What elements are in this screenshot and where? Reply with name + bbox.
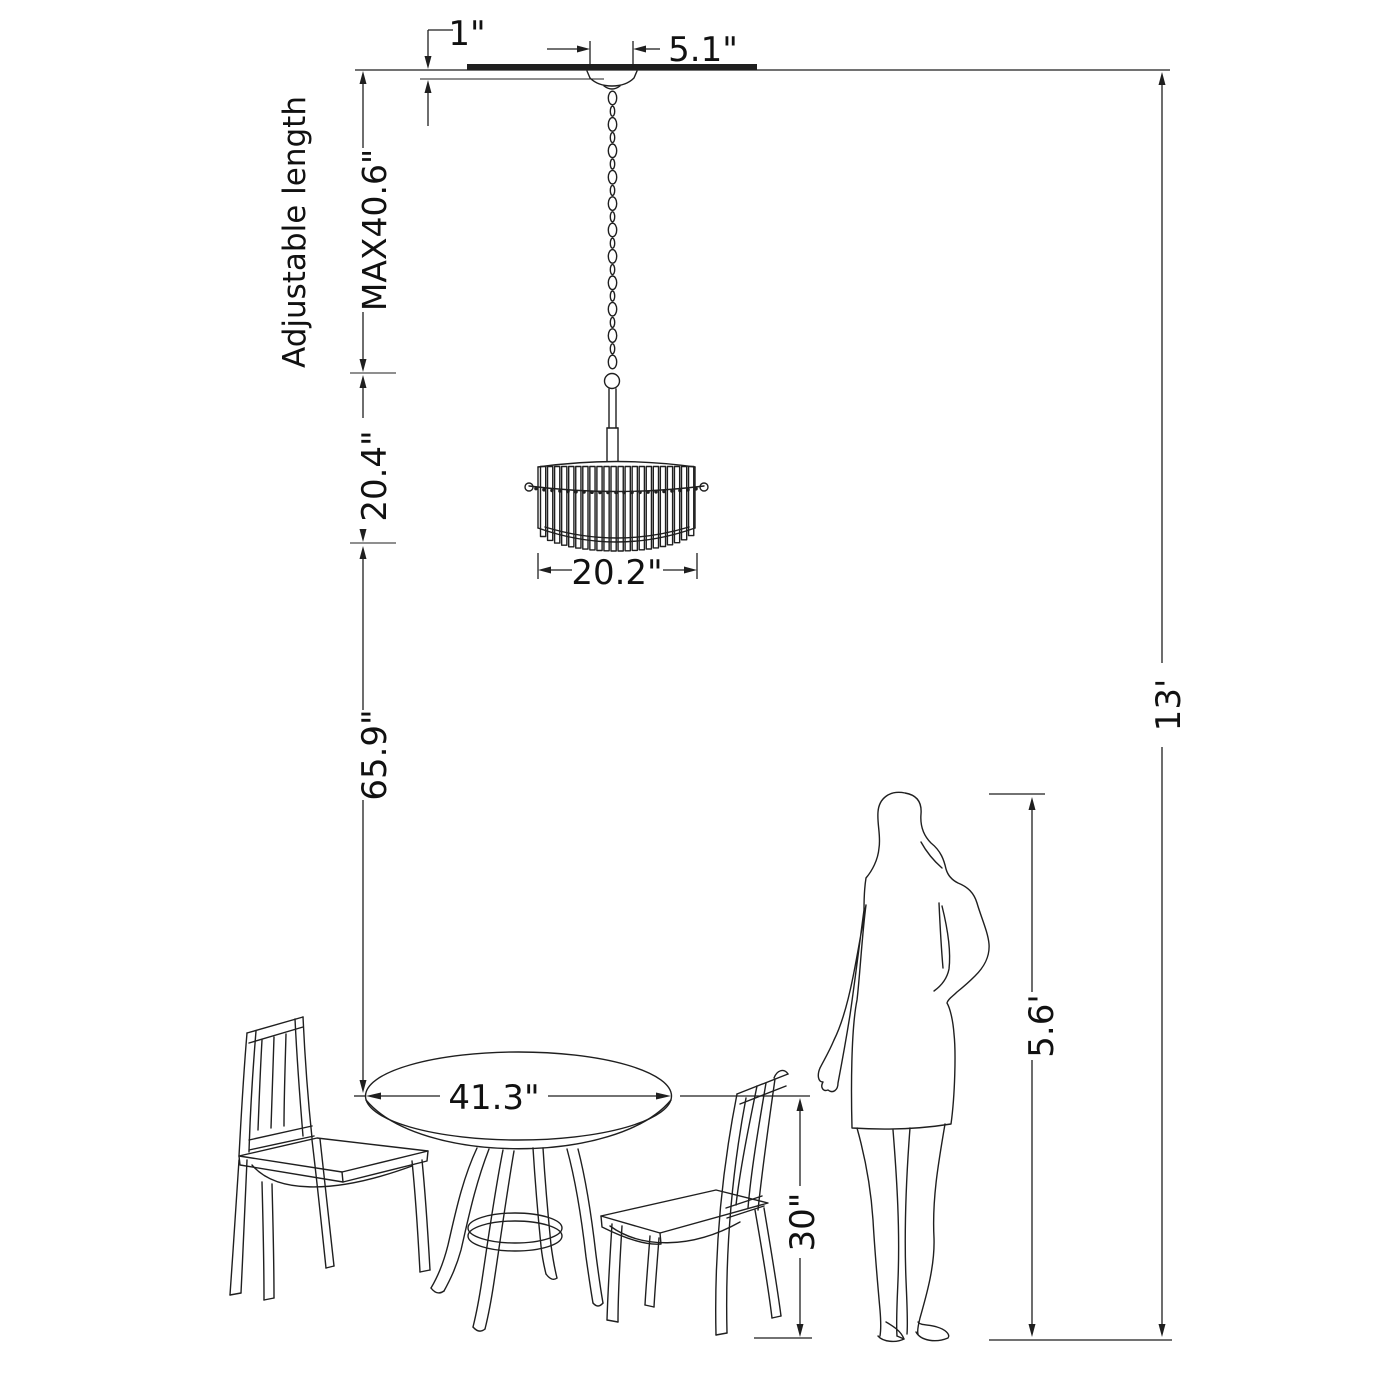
- chandelier: [525, 91, 708, 551]
- label-person-height: 5.6': [1022, 994, 1062, 1057]
- table-pedestal: [431, 1148, 603, 1331]
- woman-silhouette: [818, 792, 989, 1341]
- dimension-lines: [350, 30, 1172, 1340]
- dim-canopy-diameter: [547, 41, 660, 68]
- dim-person-height: [989, 794, 1045, 1337]
- label-table-height: 30": [783, 1193, 823, 1252]
- chair-left: [230, 1017, 430, 1300]
- stem-rod: [607, 389, 618, 461]
- label-table-diameter: 41.3": [448, 1078, 539, 1118]
- drum-shade: [525, 462, 708, 552]
- label-clearance: 65.9": [355, 709, 395, 800]
- label-canopy-diameter: 5.1": [668, 30, 738, 70]
- label-adjustable-length: Adjustable length: [277, 96, 313, 368]
- dimension-diagram: 1" 5.1" Adjustable length MAX40.6" 20.4"…: [0, 0, 1400, 1400]
- label-max-length: MAX40.6": [355, 149, 394, 311]
- dim-table-diameter: [354, 1093, 810, 1100]
- dim-ceiling-height: [989, 72, 1172, 1340]
- dimension-labels: 1" 5.1" Adjustable length MAX40.6" 20.4"…: [277, 14, 1189, 1251]
- ceiling: [355, 64, 1170, 89]
- chair-right-seat: [601, 1190, 768, 1233]
- chair-left-seat: [239, 1138, 428, 1172]
- label-fixture-height: 20.4": [355, 430, 395, 521]
- label-canopy-height: 1": [448, 14, 485, 54]
- label-ceiling-height: 13': [1149, 679, 1189, 732]
- chain-finial: [605, 374, 620, 389]
- diagram-canvas: 1" 5.1" Adjustable length MAX40.6" 20.4"…: [0, 0, 1400, 1400]
- chain: [608, 91, 616, 369]
- label-shade-diameter: 20.2": [571, 553, 662, 593]
- chair-right: [601, 1071, 788, 1335]
